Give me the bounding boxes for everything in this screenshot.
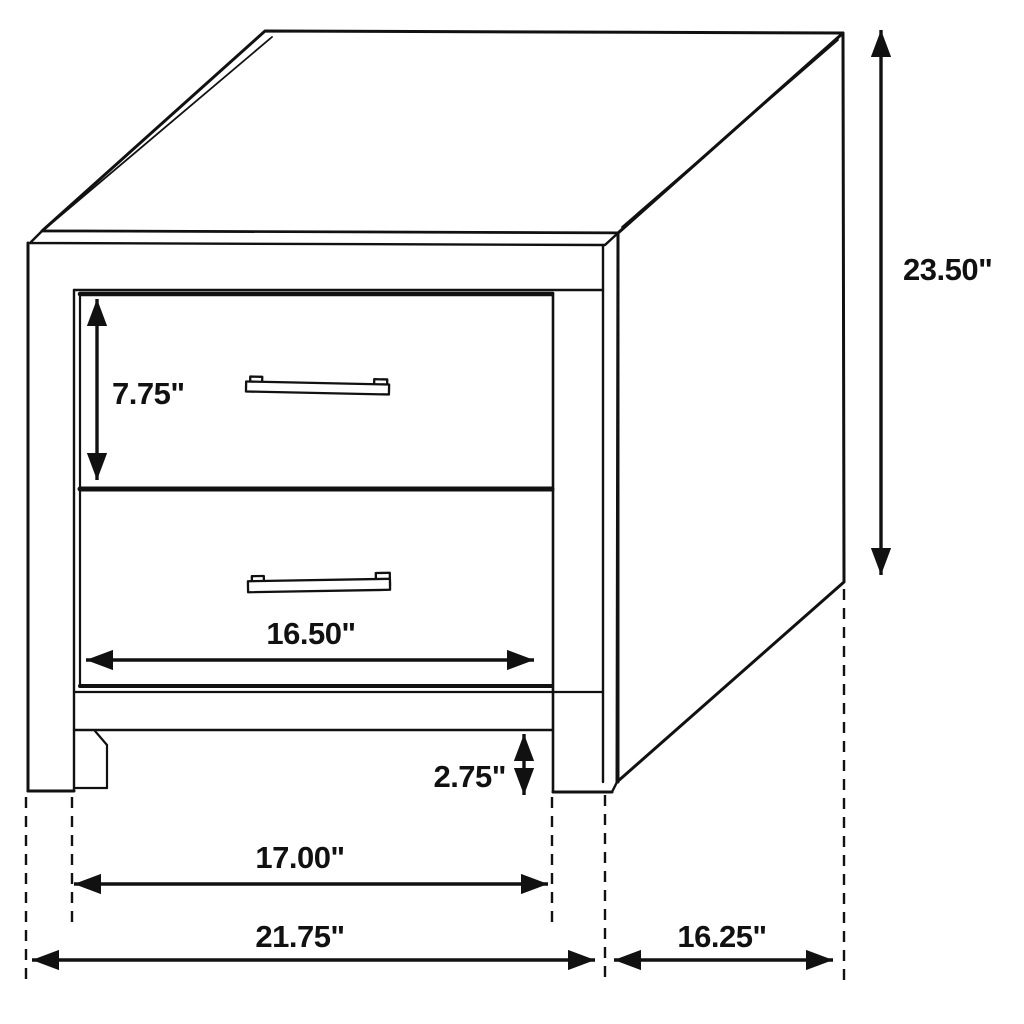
nightstand-dimension-diagram: 23.50" 7.75" 16.50" 2.75" 17.00" 21.75" … — [0, 0, 1024, 1024]
dimension-overall-height: 23.50" — [881, 30, 992, 575]
overall-height-label: 23.50" — [903, 252, 992, 287]
dimension-drawer-width: 16.50" — [86, 616, 534, 660]
dimension-depth: 16.25" — [614, 919, 833, 960]
dimension-top-drawer-height: 7.75" — [97, 299, 185, 480]
dimension-overall-width: 21.75" — [32, 919, 595, 960]
top-drawer-height-label: 7.75" — [112, 376, 185, 411]
legs — [74, 731, 617, 792]
leg-span-width-label: 17.00" — [255, 840, 344, 875]
drawer-width-label: 16.50" — [266, 616, 355, 651]
drawer-1-handle — [246, 376, 389, 394]
front-frame — [28, 233, 618, 792]
leg-height-label: 2.75" — [433, 759, 506, 794]
dimension-diagram-page: 23.50" 7.75" 16.50" 2.75" 17.00" 21.75" … — [0, 0, 1024, 1024]
drawer-2-handle — [248, 573, 390, 592]
overall-width-label: 21.75" — [255, 919, 344, 954]
depth-label: 16.25" — [677, 919, 766, 954]
dimension-leg-span-width: 17.00" — [74, 840, 548, 884]
dimension-leg-height: 2.75" — [433, 734, 524, 795]
nightstand-drawing — [28, 31, 844, 792]
